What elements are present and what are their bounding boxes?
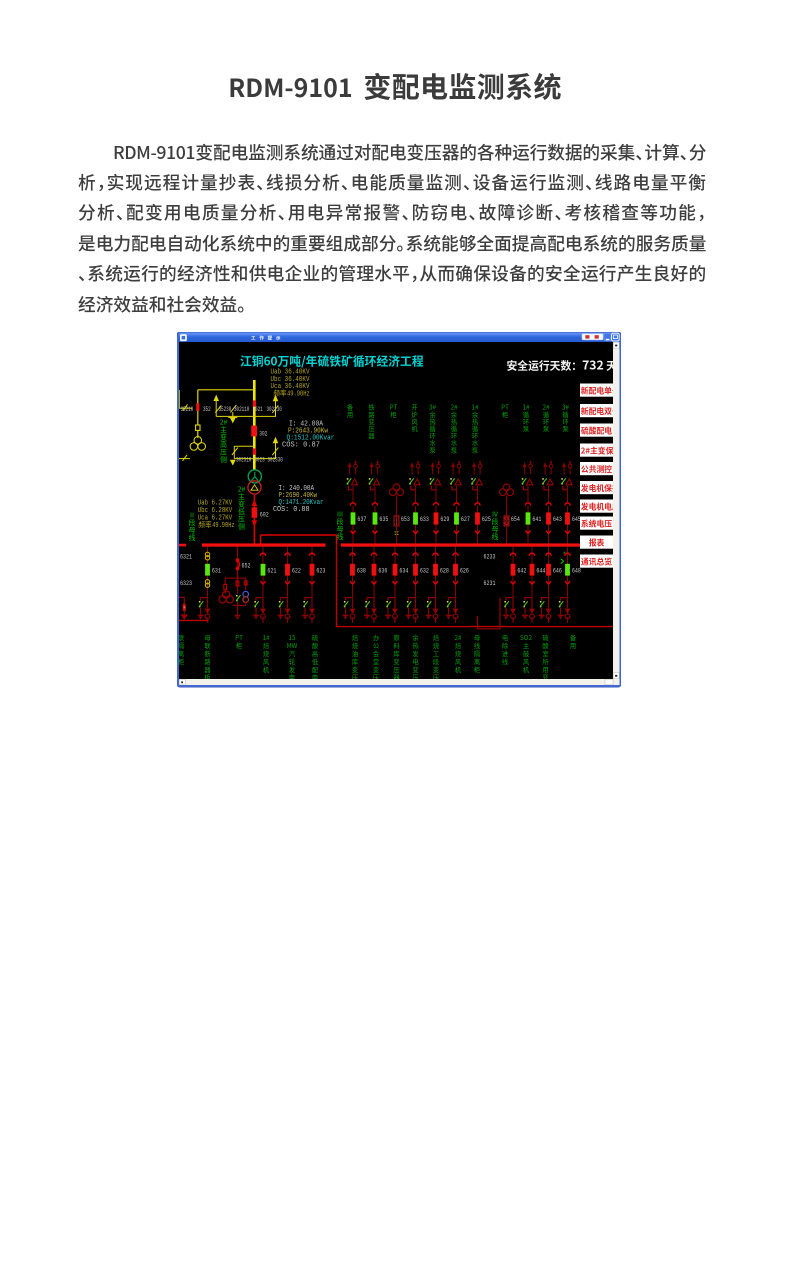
svg-text:硫酸室所用变: 硫酸室所用变 [542, 633, 549, 682]
svg-text:302330: 302330 [268, 456, 284, 463]
svg-text:COS: 0.88: COS: 0.88 [273, 506, 310, 514]
svg-text:638: 638 [357, 568, 366, 575]
svg-text:302110: 302110 [234, 406, 250, 413]
svg-text:302310: 302310 [236, 456, 252, 463]
svg-text:644: 644 [536, 568, 545, 575]
svg-text:621: 621 [267, 568, 276, 575]
svg-text:646: 646 [553, 568, 562, 575]
svg-text:开炉风机: 开炉风机 [411, 403, 418, 433]
svg-text:49.90Hz: 49.90Hz [287, 391, 310, 399]
svg-text:硫酸高低配电: 硫酸高低配电 [312, 633, 319, 682]
svg-text:641: 641 [532, 516, 541, 523]
svg-text:302: 302 [259, 430, 267, 437]
svg-text:632: 632 [420, 568, 429, 575]
svg-text:1#循环泵: 1#循环泵 [523, 403, 530, 433]
svg-text:2#主变低压侧: 2#主变低压侧 [238, 484, 246, 532]
svg-text:3023: 3023 [255, 456, 265, 463]
svg-text:635: 635 [379, 516, 388, 523]
svg-text:系统电压: 系统电压 [581, 518, 612, 529]
svg-text:643: 643 [553, 516, 562, 523]
svg-text:645: 645 [572, 516, 581, 523]
svg-text:636: 636 [378, 568, 387, 575]
svg-text:公共测控: 公共测控 [581, 464, 612, 475]
svg-text:1#焙烧风机: 1#焙烧风机 [263, 633, 270, 674]
svg-text:2#余热循环水泵: 2#余热循环水泵 [451, 403, 458, 455]
svg-text:35210: 35210 [181, 406, 194, 413]
svg-text:628: 628 [440, 568, 449, 575]
svg-text:35230: 35230 [219, 406, 232, 413]
svg-text:PT柜: PT柜 [235, 633, 243, 650]
svg-text:IV段母线: IV段母线 [492, 509, 499, 542]
svg-text:通讯总览: 通讯总览 [581, 556, 612, 567]
svg-text:652: 652 [242, 563, 251, 570]
svg-text:622: 622 [292, 568, 301, 575]
svg-text:625: 625 [482, 516, 491, 523]
svg-text:642: 642 [517, 568, 526, 575]
svg-text:COS: 0.87: COS: 0.87 [282, 442, 320, 450]
svg-text:6231: 6231 [484, 580, 496, 587]
svg-text:3021: 3021 [253, 406, 263, 413]
svg-text:备用: 备用 [347, 403, 354, 419]
svg-text:电除进线: 电除进线 [502, 633, 509, 666]
svg-text:2#主变高压侧: 2#主变高压侧 [220, 417, 228, 465]
svg-text:623: 623 [316, 568, 325, 575]
svg-text:安全运行天数：732 天: 安全运行天数：732 天 [507, 356, 618, 374]
svg-text:6321: 6321 [180, 553, 192, 560]
svg-text:6233: 6233 [484, 553, 496, 560]
svg-text:6323: 6323 [180, 580, 192, 587]
svg-text:602: 602 [260, 512, 269, 519]
svg-text:1#余热循环水泵: 1#余热循环水泵 [472, 403, 479, 455]
svg-text:母线隔离柜: 母线隔离柜 [474, 633, 481, 674]
svg-text:2#循环泵: 2#循环泵 [543, 403, 550, 433]
svg-text:备用: 备用 [570, 633, 577, 650]
svg-text:626: 626 [460, 568, 469, 575]
svg-text:3#循环泵: 3#循环泵 [562, 403, 569, 433]
svg-text:III段母线: III段母线 [337, 509, 344, 542]
svg-text:*: * [563, 551, 567, 558]
svg-text:报表: 报表 [589, 537, 605, 548]
svg-text:49.90Hz: 49.90Hz [212, 522, 234, 530]
svg-text:627: 627 [461, 516, 470, 523]
svg-text:653: 653 [401, 516, 410, 523]
svg-text:PT柜: PT柜 [501, 403, 509, 419]
svg-text:633: 633 [420, 516, 429, 523]
svg-text:频率: 频率 [198, 519, 212, 529]
svg-text:637: 637 [357, 516, 366, 523]
svg-text:629: 629 [440, 516, 449, 523]
svg-text:原料库变压器: 原料库变压器 [393, 633, 400, 682]
svg-text:工 作 提 示: 工 作 提 示 [251, 335, 282, 342]
svg-text:硫酸配电: 硫酸配电 [581, 425, 612, 436]
svg-text:PT柜: PT柜 [390, 403, 398, 419]
svg-text:302130: 302130 [267, 406, 283, 413]
svg-text:352: 352 [203, 406, 211, 413]
svg-text:2#焙烧风机: 2#焙烧风机 [455, 633, 462, 674]
svg-text:3#余热循环水泵: 3#余热循环水泵 [429, 403, 436, 455]
svg-text:江铜60万吨/年硫铁矿循环经济工程: 江铜60万吨/年硫铁矿循环经济工程 [240, 352, 424, 369]
svg-text:铁路变压器: 铁路变压器 [368, 403, 375, 440]
svg-text:648: 648 [572, 568, 581, 575]
svg-text:634: 634 [399, 568, 408, 575]
svg-text:631: 631 [212, 568, 221, 575]
svg-text:母联断路器柜: 母联断路器柜 [204, 633, 211, 682]
svg-text:654: 654 [511, 516, 520, 523]
